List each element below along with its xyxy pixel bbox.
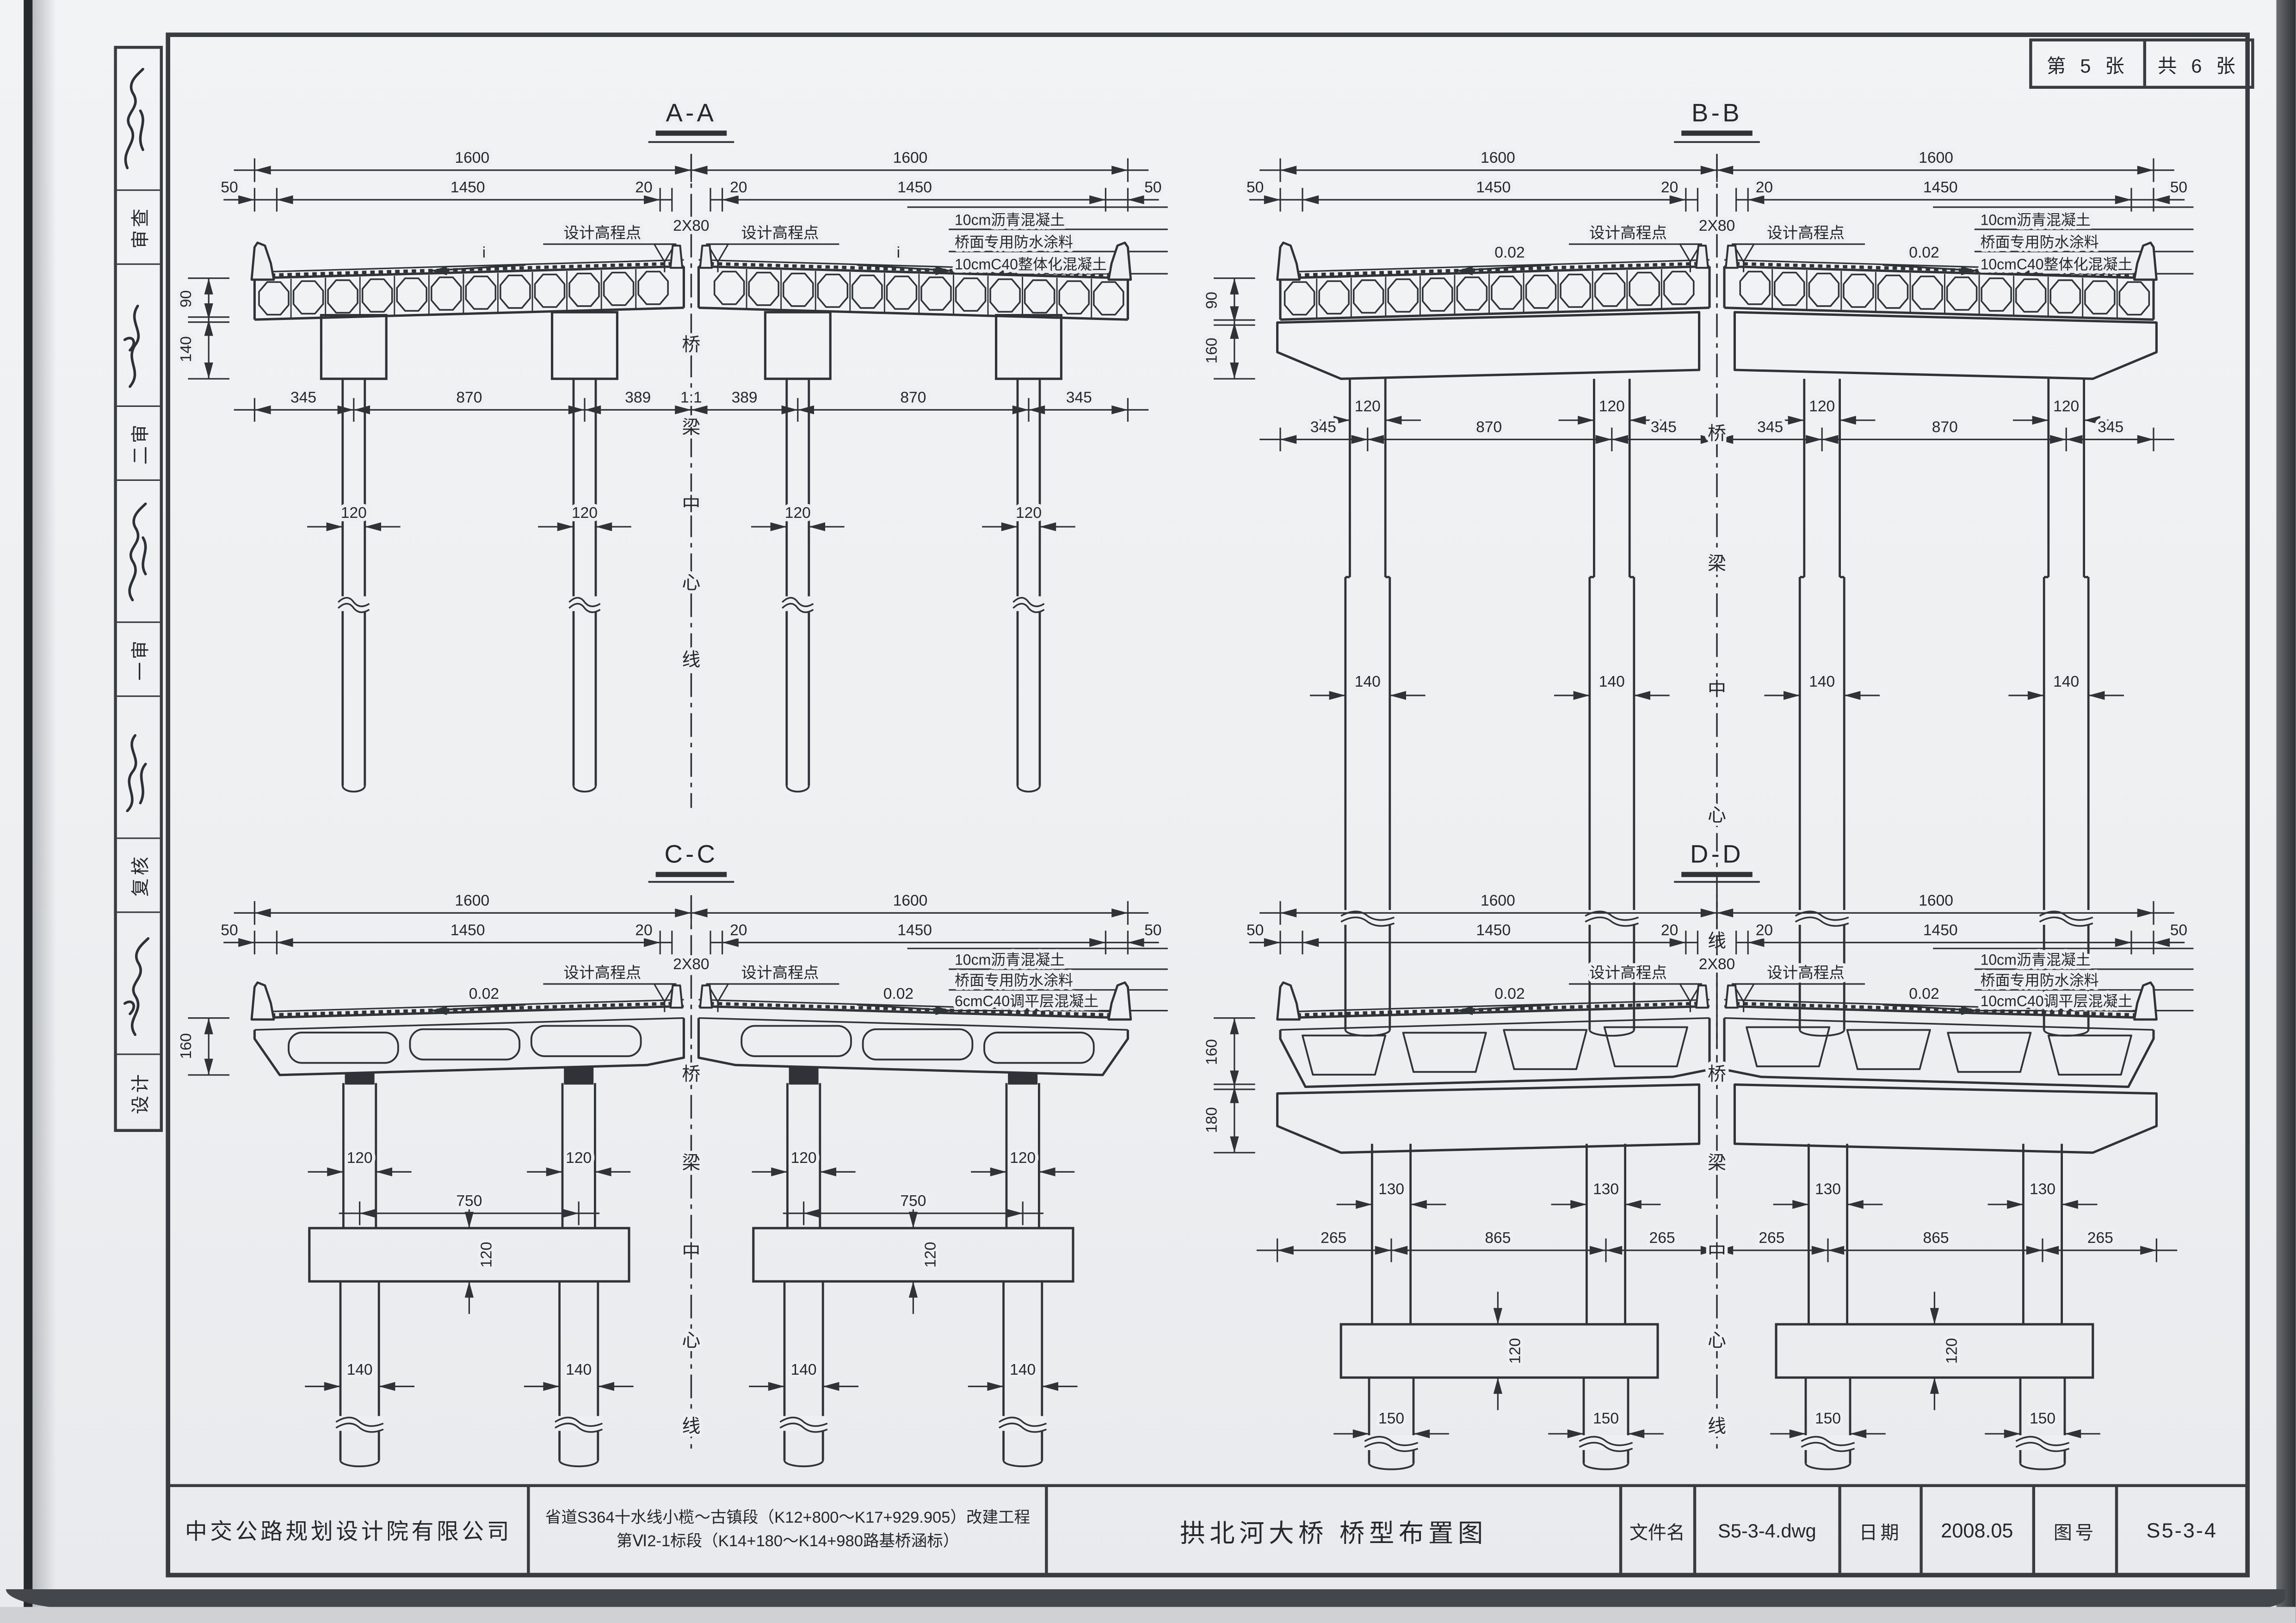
dim-label: 50 <box>221 179 238 196</box>
dim-label: 120 <box>566 1150 592 1167</box>
dim-label: 2X80 <box>1699 956 1735 973</box>
section-title: A-A <box>666 98 716 127</box>
centerline-char: 心 <box>682 573 700 593</box>
elevation-label: 设计高程点 <box>1589 224 1667 242</box>
vertical-dim-label: 90 <box>178 290 195 307</box>
dim-label: 120 <box>572 504 598 522</box>
slope-label: 0.02 <box>469 985 499 1002</box>
elevation-label: 设计高程点 <box>1767 224 1845 242</box>
centerline-char: 中 <box>1708 1242 1726 1262</box>
dim-label: 20 <box>635 922 652 939</box>
centerline-char: 心 <box>1708 805 1726 825</box>
elevation-label: 设计高程点 <box>741 224 819 242</box>
dim-label: 389 <box>625 389 651 406</box>
dim-label: 120 <box>791 1150 817 1167</box>
note-label: 10cmC40整体化混凝土 <box>955 256 1107 272</box>
dim-label: 865 <box>1485 1230 1511 1247</box>
dim-label: 120 <box>785 504 811 522</box>
section-aa-drawing: A-A 1600 1600 50 1450 20 20 1450 50 2X80… <box>123 89 1174 829</box>
elevation-label: 设计高程点 <box>1767 964 1845 982</box>
dim-label: 20 <box>635 179 652 196</box>
slope-ratio-label: 1:1 <box>680 389 702 406</box>
vertical-dim-label: 140 <box>178 336 195 362</box>
section-title: D-D <box>1690 840 1744 868</box>
dim-label: 1600 <box>1481 149 1515 166</box>
dim-label: 120 <box>1010 1150 1036 1167</box>
note-label: 10cm沥青混凝土 <box>1981 211 2091 228</box>
note-label: 10cm沥青混凝土 <box>1981 951 2091 968</box>
dim-label: 1450 <box>451 922 485 939</box>
page-bottom-margin <box>0 1607 2296 1623</box>
centerline-char: 线 <box>682 1416 700 1437</box>
dim-label: 1450 <box>897 179 932 196</box>
centerline-char: 桥 <box>682 334 700 355</box>
tie-beam-dim-label: 120 <box>1943 1338 1960 1364</box>
dim-label: 140 <box>1809 673 1835 690</box>
centerline-char: 桥 <box>682 1064 700 1084</box>
dim-label: 345 <box>1310 418 1336 436</box>
dim-label: 1450 <box>1476 179 1511 196</box>
dim-label: 140 <box>2053 673 2079 690</box>
note-label: 10cmC40调平层混凝土 <box>1981 993 2133 1009</box>
dim-label: 50 <box>2170 922 2187 939</box>
dim-label: 50 <box>221 922 238 939</box>
centerline-char: 心 <box>682 1330 700 1351</box>
note-label: 桥面专用防水涂料 <box>1981 234 2099 250</box>
project-line-2: 第Ⅵ2-1标段（K14+180～K14+980路基桥涵标） <box>617 1530 959 1554</box>
dim-label: 20 <box>1661 922 1678 939</box>
dim-label: 750 <box>900 1193 926 1210</box>
dim-label: 120 <box>2053 398 2079 415</box>
note-label: 6cmC40调平层混凝土 <box>955 993 1099 1009</box>
dim-label: 2X80 <box>673 217 709 234</box>
dim-label: 345 <box>2098 418 2123 436</box>
dim-label: 140 <box>347 1361 373 1378</box>
dim-label: 265 <box>1321 1230 1346 1247</box>
vertical-dim-label: 160 <box>1203 1039 1220 1065</box>
dim-label: 1450 <box>1923 922 1958 939</box>
dim-label: 345 <box>1651 418 1677 436</box>
dim-label: 870 <box>1476 418 1502 436</box>
dim-label: 345 <box>1757 418 1783 436</box>
elevation-label: 设计高程点 <box>741 964 819 982</box>
note-label: 桥面专用防水涂料 <box>955 972 1073 989</box>
dim-label: 20 <box>1756 922 1773 939</box>
dim-label: 2X80 <box>1699 217 1735 234</box>
centerline-char: 梁 <box>1708 1153 1726 1173</box>
vertical-dim-label: 180 <box>1203 1107 1220 1133</box>
dim-label: 1600 <box>1481 892 1515 909</box>
dim-label: 120 <box>1016 504 1042 522</box>
dim-label: 120 <box>1599 398 1625 415</box>
dim-label: 1600 <box>1919 149 1953 166</box>
note-label: 10cm沥青混凝土 <box>955 951 1065 968</box>
dim-label: 50 <box>1247 179 1264 196</box>
scanned-drawing-sheet: 第 5 张 共 6 张 审查 二审 一审 复核 设计 A-A 1600 1600… <box>0 0 2296 1623</box>
dim-label: 140 <box>791 1361 817 1378</box>
dim-label: 140 <box>1599 673 1625 690</box>
centerline-char: 心 <box>1708 1330 1726 1351</box>
slope-label: 0.02 <box>1494 244 1524 261</box>
centerline-char: 梁 <box>682 418 700 438</box>
centerline-char: 中 <box>1708 679 1726 700</box>
sheet-page-label: 第 5 张 <box>2032 42 2143 86</box>
tie-beam-dim-label: 120 <box>922 1242 939 1268</box>
title-block: 中交公路规划设计院有限公司 省道S364十水线小榄～古镇段（K12+800～K1… <box>166 1484 2250 1578</box>
vertical-dim-label: 160 <box>178 1033 195 1059</box>
tie-beam-dim-label: 120 <box>1506 1338 1524 1364</box>
drawing-number-label: 图号 <box>2031 1487 2116 1573</box>
project-line-1: 省道S364十水线小榄～古镇段（K12+800～K17+929.905）改建工程 <box>545 1506 1030 1530</box>
dim-label: 1600 <box>455 149 489 166</box>
dim-label: 265 <box>2087 1230 2113 1247</box>
centerline-char: 梁 <box>1708 553 1726 574</box>
section-dd-drawing: D-D 1600 1600 50 1450 20 20 1450 50 2X80… <box>1148 836 2199 1472</box>
dim-label: 140 <box>1010 1361 1036 1378</box>
dim-label: 2X80 <box>673 956 709 973</box>
company-name: 中交公路规划设计院有限公司 <box>170 1487 527 1573</box>
section-title: C-C <box>664 840 718 868</box>
dim-label: 345 <box>1066 389 1092 406</box>
dim-label: 150 <box>2030 1410 2055 1427</box>
tie-beam-dim-label: 120 <box>478 1242 495 1268</box>
section-cc-drawing: C-C 1600 1600 50 1450 20 20 1450 50 2X80… <box>123 836 1174 1472</box>
dim-label: 50 <box>1247 922 1264 939</box>
elevation-label: 设计高程点 <box>563 964 641 982</box>
dim-label: 130 <box>1593 1180 1619 1198</box>
dim-label: 865 <box>1923 1230 1949 1247</box>
slope-label: 0.02 <box>883 985 913 1002</box>
dim-label: 120 <box>341 504 367 522</box>
date-label: 日期 <box>1839 1487 1920 1573</box>
date-value: 2008.05 <box>1920 1487 2031 1573</box>
vertical-dim-label: 90 <box>1203 292 1220 309</box>
file-name-label: 文件名 <box>1619 1487 1692 1573</box>
dim-label: 130 <box>1815 1180 1841 1198</box>
sheet-total-label: 共 6 张 <box>2143 42 2252 86</box>
note-label: 10cm沥青混凝土 <box>955 211 1065 228</box>
centerline-char: 线 <box>1708 1416 1726 1437</box>
slope-label: i <box>482 244 486 261</box>
dim-label: 20 <box>1756 179 1773 196</box>
sheet-number-box: 第 5 张 共 6 张 <box>2029 38 2254 89</box>
dim-label: 140 <box>1355 673 1381 690</box>
slope-label: i <box>897 244 900 261</box>
note-label: 桥面专用防水涂料 <box>955 234 1073 250</box>
dim-label: 265 <box>1649 1230 1675 1247</box>
dim-label: 1450 <box>897 922 932 939</box>
centerline-char: 梁 <box>682 1153 700 1173</box>
dim-label: 1600 <box>1919 892 1953 909</box>
dim-label: 20 <box>730 179 747 196</box>
centerline-char: 线 <box>682 650 700 670</box>
note-label: 10cmC40整体化混凝土 <box>1981 256 2133 272</box>
drawing-title: 拱北河大桥 桥型布置图 <box>1046 1487 1619 1573</box>
dim-label: 20 <box>730 922 747 939</box>
binding-shadow <box>32 0 56 1623</box>
centerline-char: 桥 <box>1708 1064 1726 1084</box>
dim-label: 1450 <box>1476 922 1511 939</box>
dim-label: 150 <box>1815 1410 1841 1427</box>
dim-label: 150 <box>1378 1410 1404 1427</box>
dim-label: 750 <box>456 1193 482 1210</box>
dim-label: 1450 <box>1923 179 1958 196</box>
dim-label: 345 <box>290 389 316 406</box>
dim-label: 265 <box>1759 1230 1784 1247</box>
dim-label: 150 <box>1593 1410 1619 1427</box>
dim-label: 870 <box>456 389 482 406</box>
section-title: B-B <box>1691 98 1742 127</box>
centerline-char: 中 <box>682 1242 700 1262</box>
elevation-label: 设计高程点 <box>563 224 641 242</box>
dim-label: 1600 <box>893 149 928 166</box>
note-label: 桥面专用防水涂料 <box>1981 972 2099 989</box>
dim-label: 130 <box>2030 1180 2055 1198</box>
dim-label: 120 <box>1809 398 1835 415</box>
slope-label: 0.02 <box>1909 244 1939 261</box>
dim-label: 120 <box>1355 398 1381 415</box>
dim-label: 130 <box>1378 1180 1404 1198</box>
slope-label: 0.02 <box>1909 985 1939 1002</box>
dim-label: 1450 <box>451 179 485 196</box>
book-binding-edge <box>24 0 32 1623</box>
dim-label: 870 <box>1932 418 1958 436</box>
dim-label: 140 <box>566 1361 592 1378</box>
centerline-char: 桥 <box>1708 423 1726 443</box>
slope-label: 0.02 <box>1494 985 1524 1002</box>
dim-label: 389 <box>732 389 758 406</box>
file-name-value: S5-3-4.dwg <box>1692 1487 1838 1573</box>
drawing-number-value: S5-3-4 <box>2116 1487 2245 1573</box>
dim-label: 50 <box>2170 179 2187 196</box>
dim-label: 1600 <box>455 892 489 909</box>
dim-label: 1600 <box>893 892 928 909</box>
project-description: 省道S364十水线小榄～古镇段（K12+800～K17+929.905）改建工程… <box>527 1487 1046 1573</box>
centerline-char: 中 <box>682 494 700 515</box>
dim-label: 20 <box>1661 179 1678 196</box>
dim-label: 870 <box>900 389 926 406</box>
page-right-edge <box>2277 0 2296 1623</box>
elevation-label: 设计高程点 <box>1589 964 1667 982</box>
dim-label: 120 <box>347 1150 373 1167</box>
vertical-dim-label: 160 <box>1203 338 1220 363</box>
